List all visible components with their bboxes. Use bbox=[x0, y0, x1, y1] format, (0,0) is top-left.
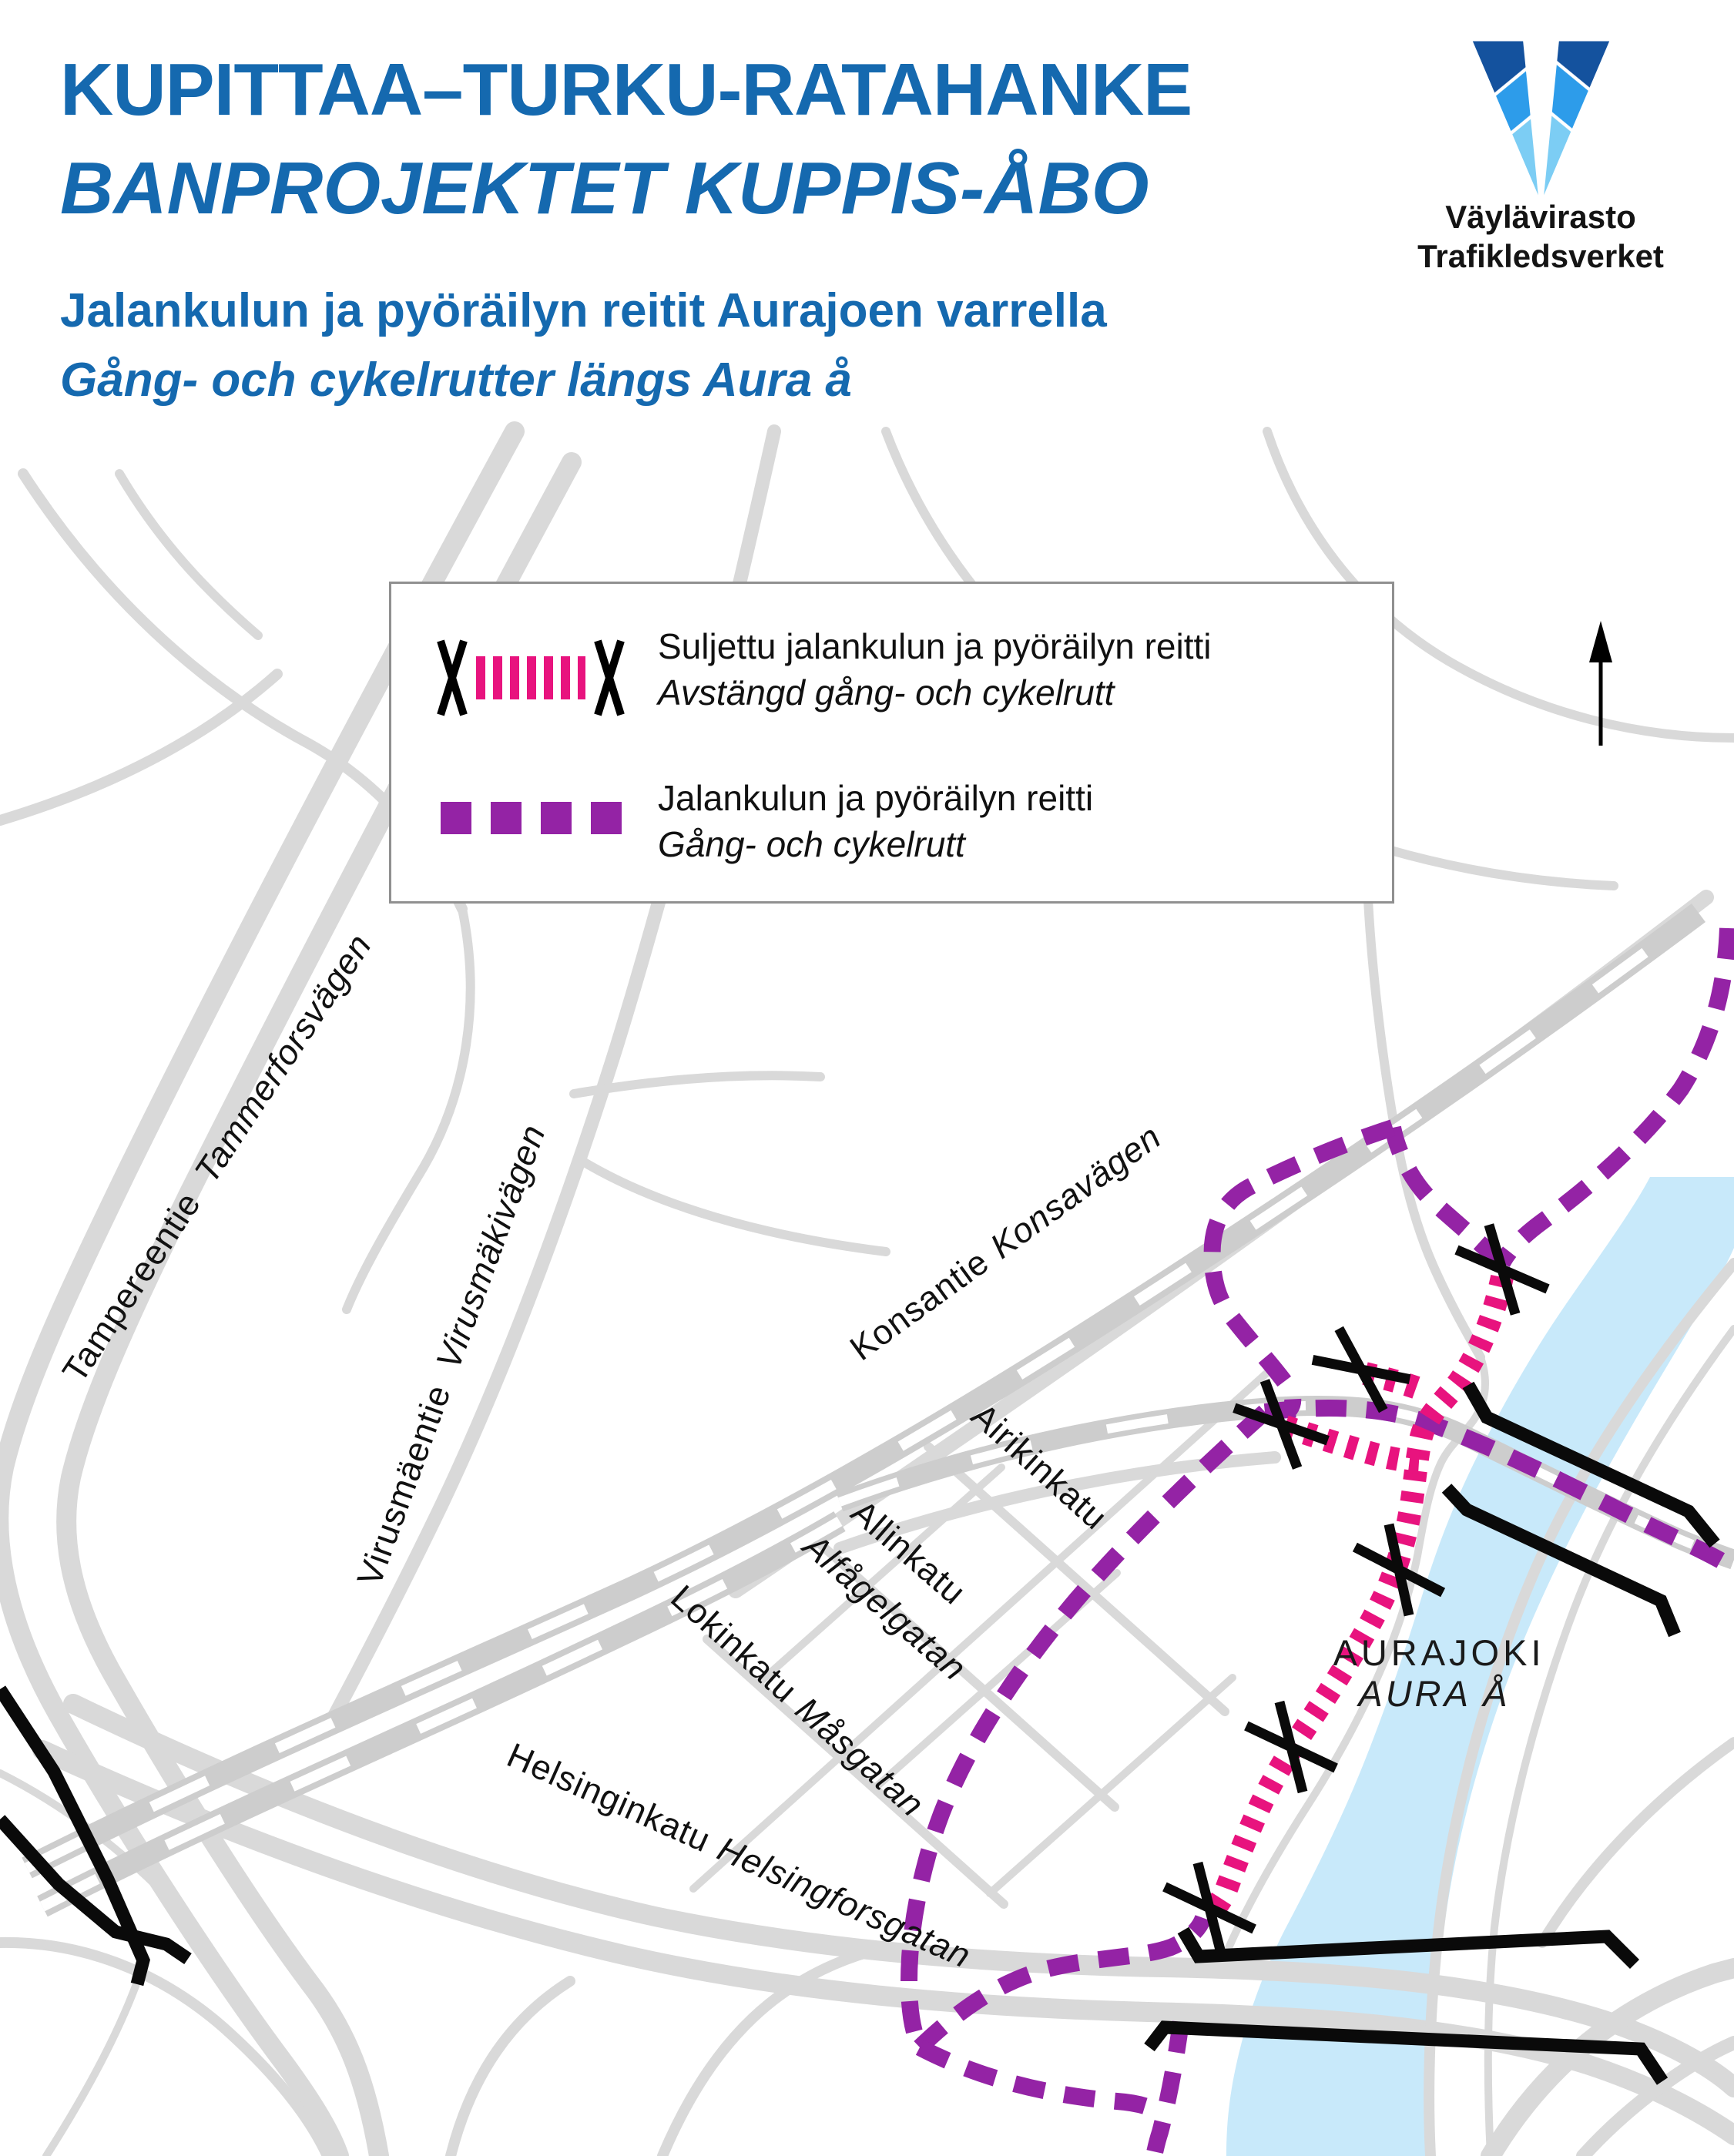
page-title-sv: BANPROJEKTET KUPPIS-ÅBO bbox=[60, 146, 1370, 231]
page-subtitle-fi: Jalankulun ja pyöräilyn reitit Aurajoen … bbox=[60, 283, 1524, 338]
logo-name-sv: Trafikledsverket bbox=[1379, 236, 1702, 276]
page-subtitle-sv: Gång- och cykelrutter längs Aura å bbox=[60, 353, 1524, 407]
poster: TampereentieTammerforsvägen Virusmäentie… bbox=[0, 0, 1734, 2156]
river-label-fi: AURAJOKI bbox=[1333, 1632, 1545, 1673]
vaylavirasto-logo: Väylävirasto Trafikledsverket bbox=[1379, 35, 1702, 276]
legend-item-closed-route: Suljettu jalankulun ja pyöräilyn reitti … bbox=[427, 624, 1361, 736]
legend-label-closed-sv: Avstängd gång- och cykelrutt bbox=[658, 670, 1212, 716]
street-label-virusmaentie: VirusmäentieVirusmäkivägen bbox=[349, 1119, 552, 1591]
legend-label-open-sv: Gång- och cykelrutt bbox=[658, 822, 1093, 868]
legend-label-open-fi: Jalankulun ja pyöräilyn reitti bbox=[658, 776, 1093, 822]
open-route-icon bbox=[427, 776, 635, 860]
vaylavirasto-logo-icon bbox=[1454, 35, 1628, 197]
street-label-airikinkatu: Airikinkatu bbox=[964, 1396, 1115, 1537]
closed-route-icon bbox=[427, 624, 635, 732]
closure-x bbox=[1236, 1697, 1345, 1797]
legend-item-open-route: Jalankulun ja pyöräilyn reitti Gång- och… bbox=[427, 776, 1361, 868]
page-title-fi: KUPITTAA–TURKU-RATAHANKE bbox=[60, 48, 1370, 132]
map-labels: TampereentieTammerforsvägen Virusmäentie… bbox=[55, 927, 1545, 1976]
legend-label-closed-fi: Suljettu jalankulun ja pyöräilyn reitti bbox=[658, 624, 1212, 670]
river-label-sv: AURA Å bbox=[1356, 1673, 1510, 1714]
map-legend: Suljettu jalankulun ja pyöräilyn reitti … bbox=[389, 582, 1394, 904]
logo-name-fi: Väylävirasto bbox=[1379, 197, 1702, 236]
